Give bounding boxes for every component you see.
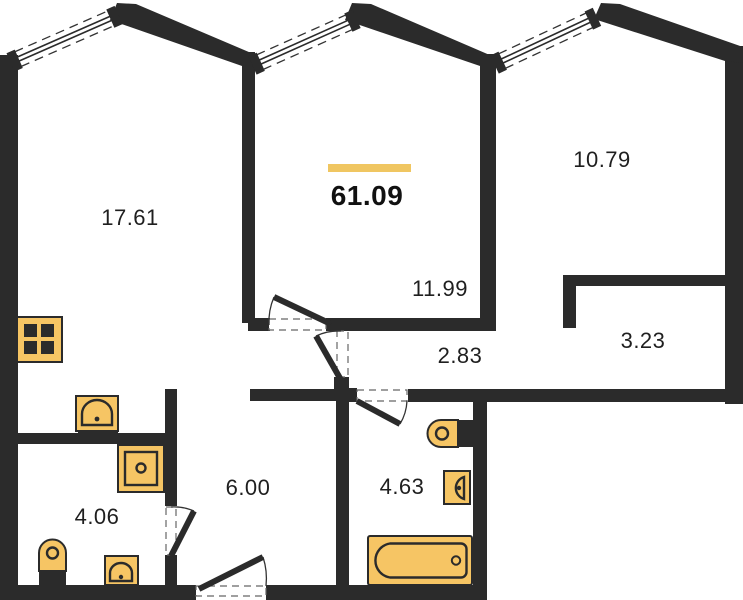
floor-plan: 61.09 17.61 11.99 10.79 3.23 2.83 6.00 4… <box>0 0 743 600</box>
wall-bay-left <box>110 3 256 70</box>
wall-niche-top <box>563 275 743 286</box>
wall-niche-stub <box>563 275 576 328</box>
wall-room1-room2 <box>242 52 255 323</box>
door-bathroom-small <box>166 507 194 556</box>
sink-icon-large-bath <box>444 471 470 504</box>
stove-icon <box>17 317 62 362</box>
room-label-living-kitchen: 17.61 <box>101 205 159 231</box>
fixtures <box>17 317 477 588</box>
windows <box>6 6 601 75</box>
wall-room2-room3 <box>480 54 496 320</box>
door-hallway <box>316 331 348 380</box>
wall-hall-bottom <box>250 389 336 401</box>
door-entrance <box>196 557 266 596</box>
wall-room2-bottom-a <box>248 318 270 331</box>
window-left <box>6 6 122 72</box>
kitchen-sink-icon <box>76 396 118 439</box>
room-label-bathroom-small: 4.06 <box>75 504 120 530</box>
wall-bay-center <box>345 3 492 70</box>
room-label-corridor: 6.00 <box>226 475 271 501</box>
wall-bath-top-stub <box>345 388 357 402</box>
toilet-icon-large-bath <box>428 420 477 447</box>
sink-icon-small-bath <box>105 556 138 585</box>
wall-room2-bottom-b <box>326 318 496 331</box>
room-label-bathroom-large: 4.63 <box>380 474 425 500</box>
wall-exterior-bottom-left <box>0 585 196 600</box>
wall-bath-top-right <box>408 389 743 402</box>
total-area-accent-bar <box>328 164 411 172</box>
wall-corridor-bath-divider <box>336 389 349 600</box>
door-room-center <box>269 297 331 330</box>
wall-exterior-left <box>0 55 18 600</box>
window-right <box>490 8 601 74</box>
door-bathroom-large <box>357 390 407 424</box>
wall-bay-right <box>594 3 743 63</box>
total-area-value: 61.09 <box>331 180 404 212</box>
room-label-hallway: 2.83 <box>438 343 483 369</box>
wall-wc-corridor-top <box>165 389 177 506</box>
wall-wc-corridor-bottom <box>165 555 177 587</box>
window-center <box>248 10 360 75</box>
room-label-room-center: 11.99 <box>412 276 468 302</box>
bathtub-icon <box>368 536 472 585</box>
wall-exterior-right <box>725 46 743 404</box>
room-label-niche: 3.23 <box>621 328 666 354</box>
washing-machine-icon <box>118 445 164 492</box>
toilet-icon-small-bath <box>39 540 66 589</box>
room-label-room-right: 10.79 <box>573 147 631 173</box>
wall-exterior-bottom-right <box>266 585 487 600</box>
